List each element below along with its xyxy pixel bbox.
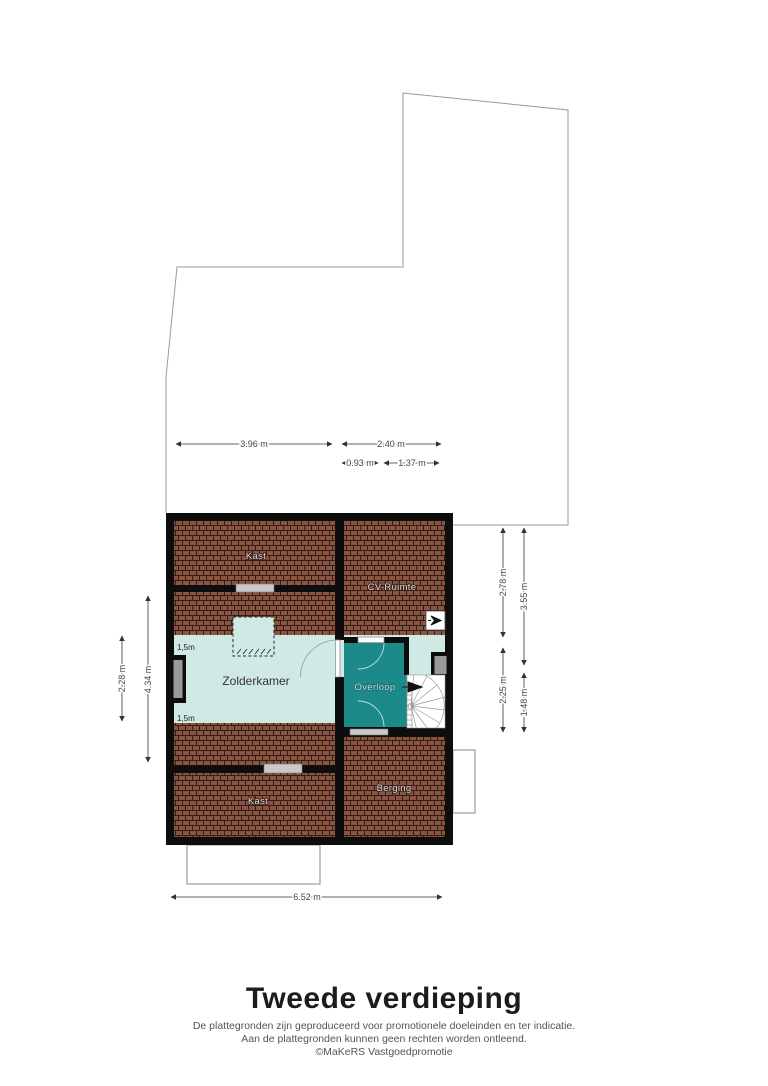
- dim-right-outer-top: 3.55 m: [519, 583, 529, 611]
- pocket-divider-wall: [404, 637, 409, 675]
- dormer-outline-right: [453, 750, 475, 813]
- clearance-label-top: 1,5m: [177, 643, 195, 652]
- room-label-overloop: Overloop: [355, 682, 396, 693]
- page-title: Tweede verdieping: [0, 982, 768, 1016]
- credit-line: ©MaKeRS Vastgoedpromotie: [0, 1046, 768, 1058]
- dim-right-outer-bottom: 1.48 m: [519, 689, 529, 717]
- room-label-zolderkamer: Zolderkamer: [222, 674, 289, 688]
- clearance-label-bottom: 1,5m: [177, 714, 195, 723]
- dashed-projection: [233, 617, 274, 656]
- dim-right-inner-bottom: 2.25 m: [498, 676, 508, 704]
- door-leaf: [336, 640, 341, 677]
- floorplan-page: Kast CV-Ruimte Zolderkamer Overloop Berg…: [0, 0, 768, 1086]
- disclaimer-line-2: Aan de plattegronden kunnen geen rechten…: [0, 1033, 768, 1045]
- dormer-outline-bottom: [187, 845, 320, 884]
- ventilation-unit: [426, 611, 445, 630]
- disclaimer-line-1: De plattegronden zijn geproduceerd voor …: [0, 1020, 768, 1032]
- room-label-cv-ruimte: CV-Ruimte: [368, 582, 417, 593]
- dim-bottom-width: 6.52 m: [293, 892, 321, 902]
- opening-kast-top: [236, 584, 274, 592]
- kast-bottom-wall: [174, 765, 335, 773]
- room-label-berging: Berging: [377, 783, 412, 794]
- dim-top-sub-left: 0.93 m: [346, 458, 374, 468]
- low-headroom-strip-lower: [174, 723, 335, 765]
- opening-kast-bottom: [264, 764, 302, 773]
- spine-wall-upper: [335, 521, 344, 640]
- floorplan-drawing: Kast CV-Ruimte Zolderkamer Overloop Berg…: [0, 0, 768, 1086]
- dim-top-width-left: 3.96 m: [240, 439, 268, 449]
- dim-top-sub-right: 1.37 m: [398, 458, 426, 468]
- window-left: [174, 660, 183, 698]
- door-leaf: [358, 637, 384, 643]
- dim-top-width-right: 2.40 m: [377, 439, 405, 449]
- dim-right-inner-top: 2.78 m: [498, 569, 508, 597]
- opening-berging: [350, 729, 388, 735]
- spine-wall-lower: [335, 677, 344, 837]
- duct-inner: [435, 656, 447, 674]
- room-label-kast-top: Kast: [246, 551, 266, 562]
- overloop-top-wall-left: [344, 637, 358, 643]
- dim-left-inner: 2.28 m: [117, 665, 127, 693]
- room-label-kast-bottom: Kast: [248, 796, 268, 807]
- dim-left-outer: 4.34 m: [143, 666, 153, 694]
